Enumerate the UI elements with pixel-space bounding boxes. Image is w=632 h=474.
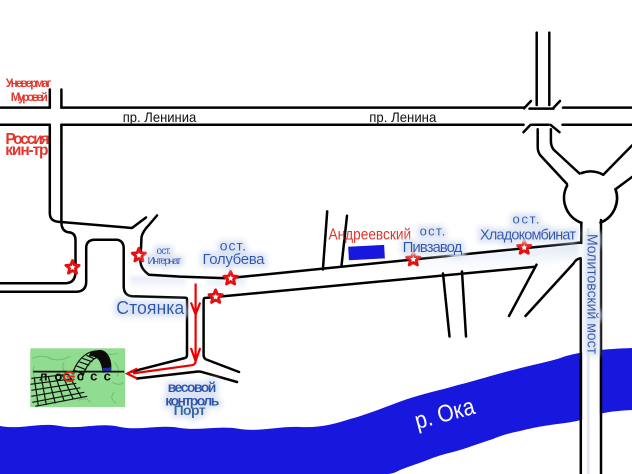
svg-text:Голубева: Голубева (203, 251, 266, 268)
svg-text:Интернат: Интернат (148, 256, 182, 267)
svg-text:Пивзавод: Пивзавод (403, 239, 463, 256)
svg-text:ост.: ост. (513, 211, 540, 226)
svg-text:Уневермаг: Уневермаг (6, 78, 52, 90)
svg-text:ссс: ссс (77, 368, 111, 383)
svg-text:ост.: ост. (420, 223, 446, 238)
svg-text:Стоянка: Стоянка (116, 298, 185, 318)
svg-text:кин-тр: кин-тр (5, 142, 48, 159)
svg-text:Андреевский: Андреевский (329, 227, 412, 244)
svg-text:Хладокомбинат: Хладокомбинат (480, 227, 576, 243)
svg-text:пр. Ленина: пр. Ленина (369, 109, 436, 125)
svg-text:Муровей: Муровей (11, 92, 48, 104)
svg-text:Порт: Порт (174, 402, 206, 418)
svg-text:пр. Лениниа: пр. Лениниа (123, 109, 197, 125)
svg-text:Молитовский мост: Молитовский мост (584, 234, 601, 354)
